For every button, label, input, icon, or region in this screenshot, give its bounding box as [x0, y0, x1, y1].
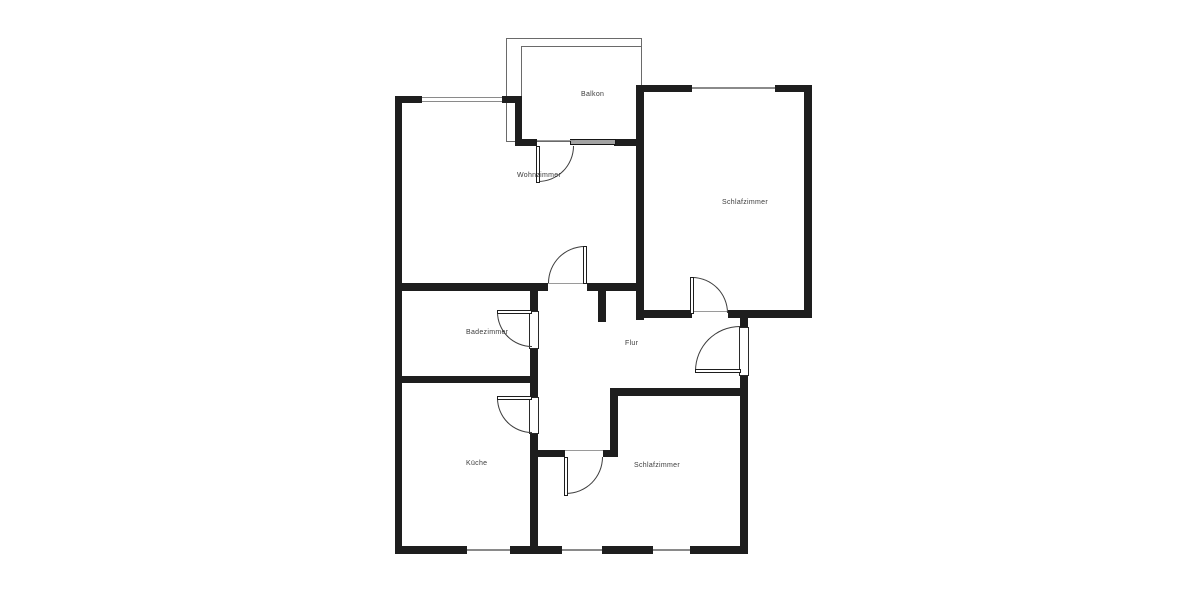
kueche-door-leaf [497, 396, 532, 400]
wall-flur-stub [598, 291, 606, 322]
entry-door-swing-arc [695, 326, 740, 371]
schlafzimmer2-window-1 [562, 549, 602, 551]
wall-schlafzimmer2-notch [610, 388, 618, 457]
wall-schlafzimmer2-top [610, 388, 748, 396]
wall-outer-bottom-b [510, 546, 562, 554]
wall-bad-kueche-right-b [530, 348, 538, 398]
wall-wohnzimmer-bottom-a [395, 283, 548, 291]
floor-plan-page: BalkonWohnzimmerSchlafzimmerBadezimmerFl… [0, 0, 1200, 600]
wall-badezimmer-bottom [395, 376, 538, 383]
balcony-door-threshold [537, 140, 575, 141]
wall-bad-kueche-right-c [530, 433, 538, 554]
wall-wohnzimmer-bottom-b [587, 283, 644, 291]
wall-schlafzimmer1-right [804, 85, 812, 317]
schlafzimmer1-top-window [692, 87, 775, 89]
wohnzimmer-door-threshold [548, 283, 587, 284]
wall-bad-kueche-right-a [530, 283, 538, 312]
kueche-bottom-window [467, 549, 510, 551]
wall-outer-bottom-a [395, 546, 467, 554]
wall-schlafzimmer2-right [740, 388, 748, 554]
balcony-window-sill [570, 139, 616, 145]
badezimmer-door-leaf [497, 310, 532, 314]
floor-plan-canvas: BalkonWohnzimmerSchlafzimmerBadezimmerFl… [0, 0, 1200, 600]
wall-outer-bottom-c [602, 546, 653, 554]
schlafzimmer2-door-threshold [565, 450, 603, 451]
wohnzimmer-door-swing-arc [548, 246, 585, 283]
wall-schlafzimmer2-left-b [603, 450, 618, 457]
schlafzimmer2-window-2 [653, 549, 690, 551]
wall-schlafzimmer2-left-a [538, 450, 565, 457]
wall-schlafzimmer1-bottom-a [636, 310, 692, 318]
wohnzimmer-door-leaf [583, 246, 587, 284]
wall-balcony-bottom-a [515, 139, 537, 146]
schlafzimmer2-door-leaf [564, 457, 568, 496]
wall-outer-left [395, 96, 402, 554]
wohnzimmer-top-window [422, 97, 502, 102]
schlafzimmer2-door-swing-arc [566, 457, 603, 494]
entry-door-leaf [695, 369, 741, 373]
schlafzimmer1-door-leaf [690, 277, 694, 314]
wall-schlafzimmer1-top-a [636, 85, 692, 92]
kueche-door-swing-arc [497, 398, 532, 433]
schlafzimmer1-door-swing-arc [692, 277, 728, 313]
wall-outer-bottom-d [690, 546, 748, 554]
wall-wohnzimmer-top-a [395, 96, 422, 103]
